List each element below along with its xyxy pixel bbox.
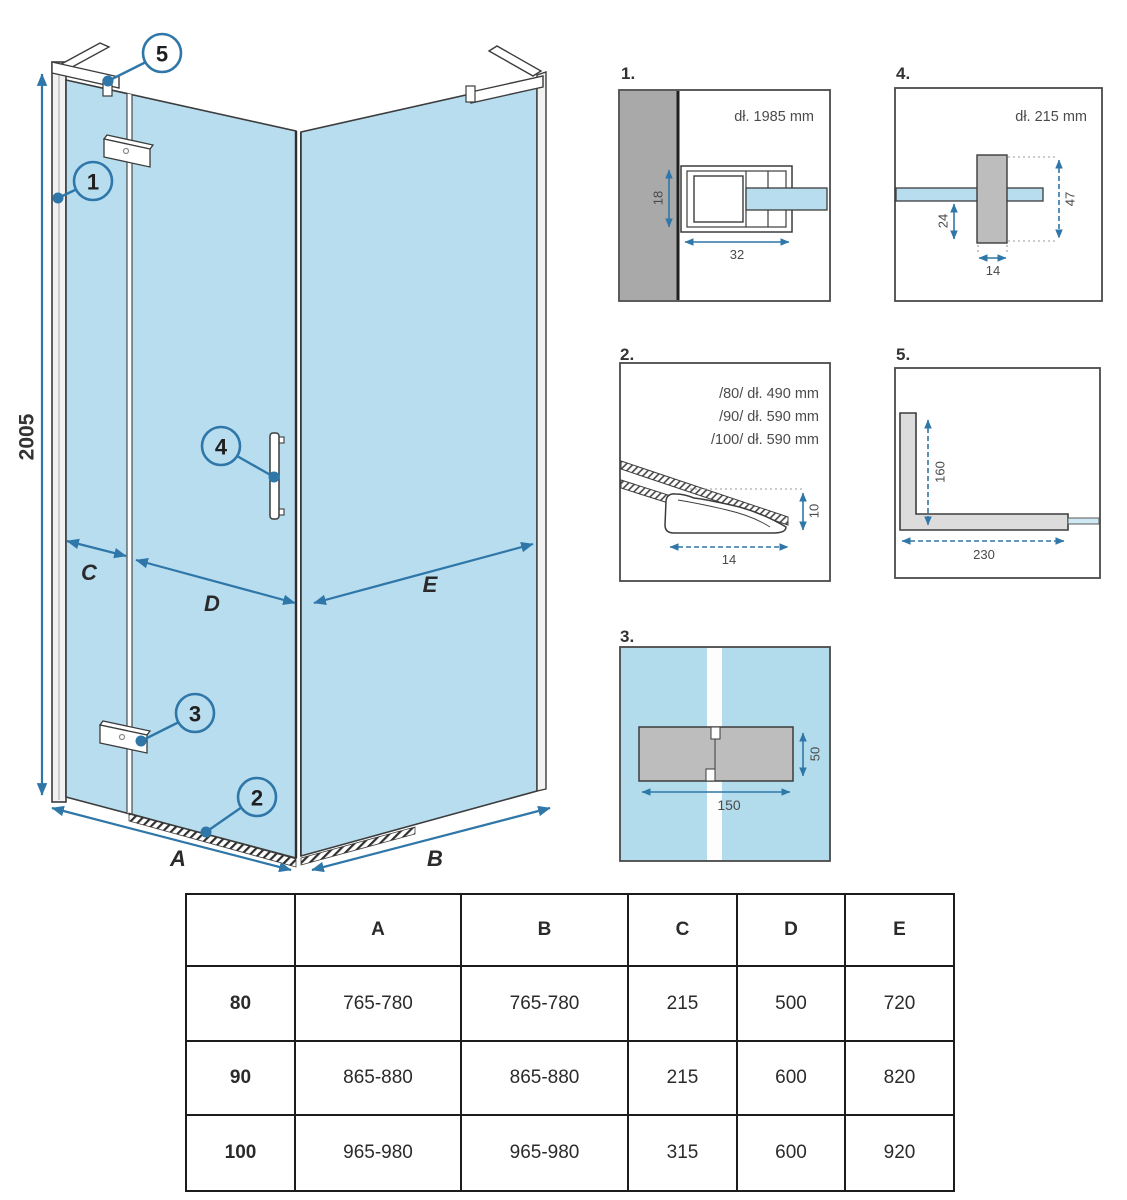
door-hinge-gap xyxy=(127,94,132,815)
callout-4-number: 4 xyxy=(215,435,228,460)
table-row-label: 100 xyxy=(187,1116,294,1190)
dim-a-label: A xyxy=(169,846,186,871)
dim-height-2005: 2005 xyxy=(16,74,43,795)
table-header-d: D xyxy=(738,895,844,965)
detail-4-label: 4. xyxy=(896,64,910,83)
callout-5-number: 5 xyxy=(156,42,168,67)
dim-24-label: 24 xyxy=(936,214,951,228)
detail-2-size-80: /80/ dł. 490 mm xyxy=(719,386,819,402)
dim-e-label: E xyxy=(423,572,439,597)
detail-2-label: 2. xyxy=(620,345,634,364)
dim-230-label: 230 xyxy=(973,547,995,562)
table-header-c: C xyxy=(629,895,736,965)
glass-edge-line xyxy=(1068,518,1099,524)
dim-150-label: 150 xyxy=(717,797,741,813)
table-cell: 965-980 xyxy=(296,1116,460,1190)
detail-1-length: dł. 1985 mm xyxy=(734,109,814,125)
callout-1-number: 1 xyxy=(87,170,99,195)
table-cell: 820 xyxy=(846,1042,953,1114)
table-cell: 865-880 xyxy=(462,1042,627,1114)
table-cell: 600 xyxy=(738,1116,844,1190)
detail-1-label: 1. xyxy=(621,64,635,83)
dim-c-label: C xyxy=(81,560,98,585)
detail-5-support-bracket: 5. 160 230 xyxy=(895,345,1100,578)
table-cell: 215 xyxy=(629,967,736,1040)
table-cell: 600 xyxy=(738,1042,844,1114)
main-isometric-drawing: 2005 C D E A B 5 xyxy=(16,34,551,871)
table-cell: 865-880 xyxy=(296,1042,460,1114)
detail-2-bottom-seal: 2. /80/ dł. 490 mm /90/ dł. 590 mm /100/… xyxy=(620,345,830,581)
table-header-a: A xyxy=(296,895,460,965)
dim-14-seal-label: 14 xyxy=(722,552,736,567)
dimension-table: A B C D E 80 765-780 765-780 215 500 720… xyxy=(185,893,955,1192)
dim-32-label: 32 xyxy=(730,247,744,262)
handle-bar-section xyxy=(977,155,1007,243)
table-cell: 920 xyxy=(846,1116,953,1190)
callout-3-number: 3 xyxy=(189,702,201,727)
dim-160-label: 160 xyxy=(933,461,948,483)
detail-1-wall-profile: 1. dł. 1985 mm 18 32 xyxy=(619,64,830,301)
table-cell: 765-780 xyxy=(462,967,627,1040)
callout-5: 5 xyxy=(103,34,182,87)
shower-enclosure-spec-sheet: 2005 C D E A B 5 xyxy=(0,0,1127,1200)
dim-18-label: 18 xyxy=(651,191,666,205)
dim-14-label: 14 xyxy=(986,263,1000,278)
table-cell: 765-780 xyxy=(296,967,460,1040)
table-cell: 965-980 xyxy=(462,1116,627,1190)
table-row-label: 80 xyxy=(187,967,294,1040)
detail-3-label: 3. xyxy=(620,627,634,646)
table-corner-cell xyxy=(187,895,294,965)
dim-47-label: 47 xyxy=(1063,192,1078,206)
dim-10-label: 10 xyxy=(807,504,822,518)
wall-profile-right xyxy=(537,72,546,791)
dim-50-label: 50 xyxy=(808,747,823,761)
wall-profile-left xyxy=(52,62,66,802)
detail-5-label: 5. xyxy=(896,345,910,364)
detail-4-length: dł. 215 mm xyxy=(1015,109,1087,125)
detail-3-hinge: 3. 50 150 xyxy=(620,627,830,861)
detail-2-size-90: /90/ dł. 590 mm xyxy=(719,409,819,425)
glass-edge xyxy=(896,188,1043,201)
table-header-b: B xyxy=(462,895,627,965)
callout-2-number: 2 xyxy=(251,786,263,811)
table-cell: 720 xyxy=(846,967,953,1040)
dim-d-label: D xyxy=(204,591,220,616)
height-label: 2005 xyxy=(16,413,39,460)
dim-b-label: B xyxy=(427,846,443,871)
table-cell: 500 xyxy=(738,967,844,1040)
detail-2-size-100: /100/ dł. 590 mm xyxy=(711,432,819,448)
table-row-label: 90 xyxy=(187,1042,294,1114)
table-cell: 215 xyxy=(629,1042,736,1114)
detail-4-handle: 4. dł. 215 mm 47 24 14 xyxy=(895,64,1102,301)
table-cell: 315 xyxy=(629,1116,736,1190)
glass-panel-right xyxy=(301,79,537,856)
table-header-e: E xyxy=(846,895,953,965)
